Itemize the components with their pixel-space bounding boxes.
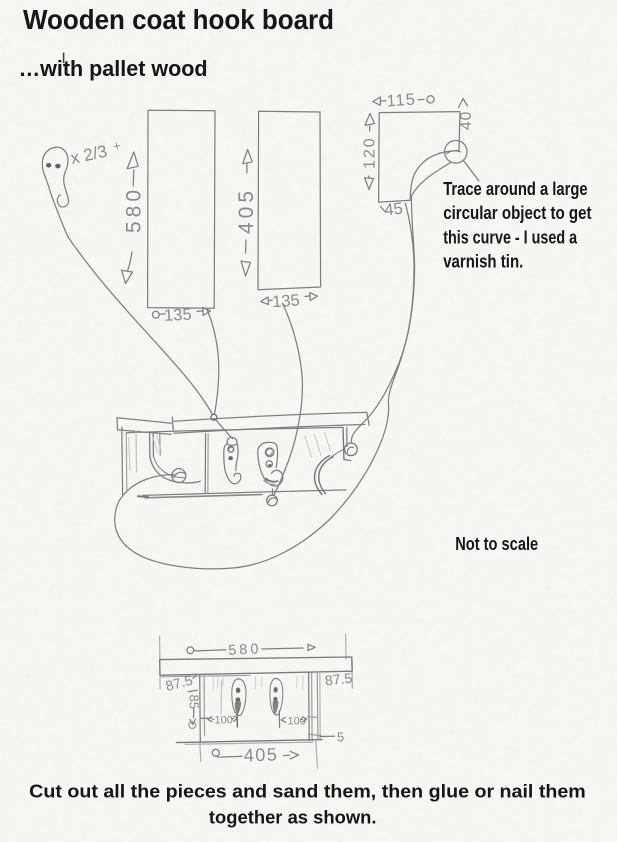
svg-text:100: 100 [215,715,233,727]
svg-text:Trace around a large: Trace around a large [443,179,587,199]
svg-text:Wooden coat hook board: Wooden coat hook board [23,4,334,35]
svg-text:580: 580 [123,186,146,233]
svg-text:40: 40 [458,111,475,130]
svg-text:45: 45 [384,200,404,220]
svg-text:87.5: 87.5 [324,670,353,689]
svg-text:85: 85 [187,695,202,709]
svg-text:varnish tin.: varnish tin. [443,251,523,271]
svg-text:405: 405 [235,187,258,234]
svg-text:x 2/3: x 2/3 [69,142,109,168]
svg-text:this curve - I used a: this curve - I used a [443,227,578,247]
svg-text:580: 580 [228,641,262,659]
svg-text:5: 5 [337,730,344,745]
svg-text:135: 135 [164,306,192,325]
svg-text:135: 135 [272,291,301,311]
svg-text:405: 405 [243,744,278,765]
svg-text:Cut out all the pieces and san: Cut out all the pieces and sand them, th… [29,782,586,802]
svg-text:115: 115 [386,90,416,110]
svg-text:+: + [112,138,123,154]
svg-text:circular object to get: circular object to get [443,203,591,223]
svg-text:120: 120 [362,136,379,169]
svg-text:together as shown.: together as shown. [209,808,377,828]
svg-text:…with pallet wood: …with pallet wood [19,56,208,81]
svg-text:Not to scale: Not to scale [455,534,538,554]
